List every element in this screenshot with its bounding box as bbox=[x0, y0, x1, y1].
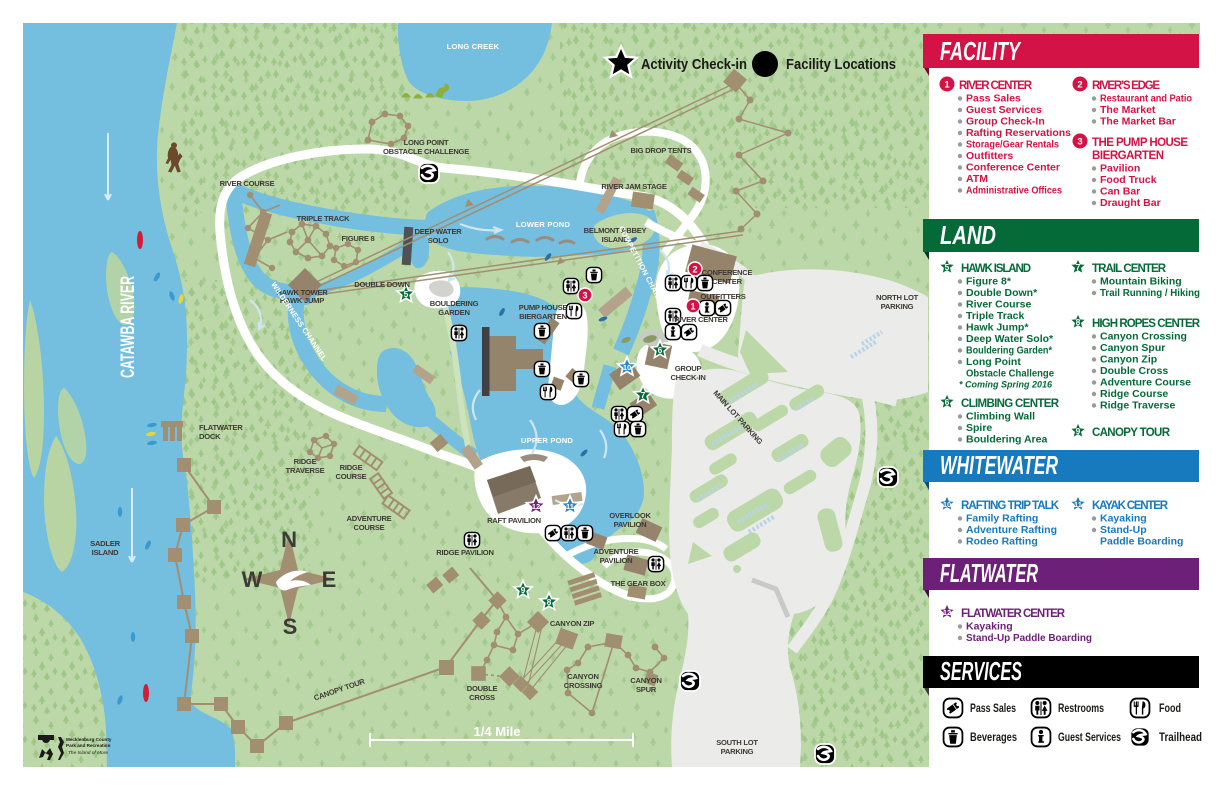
svg-text:PUMP HOUSE: PUMP HOUSE bbox=[519, 303, 568, 312]
svg-text:Spire: Spire bbox=[966, 422, 992, 434]
svg-text:5: 5 bbox=[945, 262, 950, 272]
svg-text:2: 2 bbox=[692, 265, 697, 275]
svg-text:DOUBLE DOWN: DOUBLE DOWN bbox=[354, 280, 409, 289]
svg-text:Triple Track: Triple Track bbox=[966, 310, 1025, 322]
svg-text:Mecklenburg County: Mecklenburg County bbox=[66, 737, 112, 742]
svg-text:DOCK: DOCK bbox=[199, 432, 221, 441]
svg-text:11: 11 bbox=[566, 502, 574, 511]
svg-text:FLATWATER CENTER: FLATWATER CENTER bbox=[961, 608, 1066, 620]
svg-text:RIVER JAM STAGE: RIVER JAM STAGE bbox=[601, 182, 666, 191]
svg-text:CLIMBING CENTER: CLIMBING CENTER bbox=[961, 398, 1060, 410]
svg-text:OUTFITTERS: OUTFITTERS bbox=[700, 292, 745, 301]
svg-text:PAVILION: PAVILION bbox=[600, 556, 633, 565]
svg-text:Deep Water Solo*: Deep Water Solo* bbox=[966, 333, 1054, 345]
svg-text:DEEP WATER: DEEP WATER bbox=[414, 227, 462, 236]
svg-text:SOUTH LOT: SOUTH LOT bbox=[716, 738, 758, 747]
svg-text:E: E bbox=[322, 567, 337, 592]
svg-text:Restaurant and Patio: Restaurant and Patio bbox=[1100, 93, 1192, 105]
svg-text:Storage/Gear Rentals: Storage/Gear Rentals bbox=[966, 139, 1059, 151]
svg-text:Stand-Up: Stand-Up bbox=[1100, 524, 1147, 536]
svg-text:LONG POINT: LONG POINT bbox=[404, 138, 449, 147]
svg-text:11: 11 bbox=[1074, 500, 1082, 509]
svg-text:TRAIL CENTER: TRAIL CENTER bbox=[1092, 263, 1167, 275]
svg-text:ADVENTURE: ADVENTURE bbox=[593, 547, 638, 556]
svg-text:THE GEAR BOX: THE GEAR BOX bbox=[611, 579, 666, 588]
svg-text:THE PUMP HOUSE: THE PUMP HOUSE bbox=[1092, 137, 1188, 149]
svg-text:Canyon Zip: Canyon Zip bbox=[1100, 354, 1157, 366]
svg-text:COURSE: COURSE bbox=[354, 523, 385, 532]
svg-text:Hawk Jump*: Hawk Jump* bbox=[966, 322, 1029, 334]
svg-text:WHITEWATER: WHITEWATER bbox=[940, 450, 1058, 480]
svg-text:BELMONT ABBEY: BELMONT ABBEY bbox=[584, 226, 647, 235]
svg-text:Pass Sales: Pass Sales bbox=[966, 93, 1021, 105]
svg-text:OBSTACLE CHALLENGE: OBSTACLE CHALLENGE bbox=[383, 147, 469, 156]
svg-text:Rodeo Rafting: Rodeo Rafting bbox=[966, 536, 1038, 548]
svg-text:W: W bbox=[242, 567, 263, 592]
svg-text:Activity Check-in: Activity Check-in bbox=[641, 56, 747, 73]
svg-text:Family Rafting: Family Rafting bbox=[966, 513, 1038, 525]
svg-text:BIERGARTEN: BIERGARTEN bbox=[1092, 150, 1164, 162]
svg-text:Restrooms: Restrooms bbox=[1058, 703, 1104, 715]
svg-text:9: 9 bbox=[1076, 426, 1081, 436]
svg-text:12: 12 bbox=[532, 502, 540, 511]
svg-text:LAND: LAND bbox=[940, 220, 996, 250]
svg-text:Guest Services: Guest Services bbox=[1058, 732, 1121, 744]
svg-text:Trailhead: Trailhead bbox=[1159, 732, 1202, 744]
svg-text:Rafting Reservations: Rafting Reservations bbox=[966, 127, 1071, 139]
svg-text:SOLO: SOLO bbox=[428, 236, 449, 245]
svg-text:BIERGARTEN: BIERGARTEN bbox=[519, 312, 567, 321]
svg-text:Canyon Spur: Canyon Spur bbox=[1100, 342, 1165, 354]
svg-text:CONFERENCE: CONFERENCE bbox=[702, 268, 753, 277]
svg-text:SPUR: SPUR bbox=[636, 685, 657, 694]
svg-text:Beverages: Beverages bbox=[970, 732, 1017, 744]
svg-text:COURSE: COURSE bbox=[336, 472, 367, 481]
svg-text:KAYAK CENTER: KAYAK CENTER bbox=[1092, 500, 1169, 512]
svg-text:Food: Food bbox=[1159, 703, 1181, 715]
svg-text:Obstacle Challenge: Obstacle Challenge bbox=[966, 368, 1054, 380]
svg-text:Double Down*: Double Down* bbox=[966, 287, 1038, 299]
svg-text:Food Truck: Food Truck bbox=[1100, 174, 1157, 186]
svg-text:The Market Bar: The Market Bar bbox=[1100, 116, 1176, 128]
svg-text:GARDEN: GARDEN bbox=[438, 308, 469, 317]
svg-text:Kayaking: Kayaking bbox=[1100, 513, 1147, 525]
svg-text:Facility Locations: Facility Locations bbox=[786, 56, 896, 73]
svg-text:OVERLOOK: OVERLOOK bbox=[609, 511, 651, 520]
svg-text:10: 10 bbox=[623, 363, 631, 372]
svg-text:7: 7 bbox=[641, 390, 646, 400]
svg-text:SERVICES: SERVICES bbox=[940, 656, 1022, 686]
svg-text:BOULDERING: BOULDERING bbox=[430, 299, 479, 308]
svg-text:NORTH LOT: NORTH LOT bbox=[876, 293, 919, 302]
svg-text:CANYON: CANYON bbox=[630, 676, 661, 685]
svg-text:3: 3 bbox=[582, 291, 587, 301]
svg-text:RIDGE PAVILION: RIDGE PAVILION bbox=[436, 548, 493, 557]
svg-text:Adventure Rafting: Adventure Rafting bbox=[966, 524, 1057, 536]
svg-text:Stand-Up Paddle Boarding: Stand-Up Paddle Boarding bbox=[966, 632, 1092, 644]
svg-text:6: 6 bbox=[945, 397, 950, 407]
svg-text:Climbing Wall: Climbing Wall bbox=[966, 411, 1035, 423]
svg-text:CROSS: CROSS bbox=[469, 693, 495, 702]
svg-text:10: 10 bbox=[943, 500, 951, 509]
svg-text:HIGH ROPES CENTER: HIGH ROPES CENTER bbox=[1092, 318, 1201, 330]
svg-text:Adventure Course: Adventure Course bbox=[1100, 377, 1191, 389]
svg-text:Guest Services: Guest Services bbox=[966, 104, 1042, 116]
svg-text:Group Check-In: Group Check-In bbox=[966, 116, 1045, 128]
svg-text:DOUBLE: DOUBLE bbox=[467, 684, 498, 693]
svg-text:CANYON: CANYON bbox=[567, 672, 598, 681]
svg-text:CHECK-IN: CHECK-IN bbox=[670, 373, 705, 382]
svg-text:CANOPY TOUR: CANOPY TOUR bbox=[1092, 427, 1171, 439]
svg-text:SADLER: SADLER bbox=[90, 539, 120, 548]
svg-text:RIVER CENTER: RIVER CENTER bbox=[674, 315, 728, 324]
svg-text:ADVENTURE: ADVENTURE bbox=[346, 514, 391, 523]
svg-text:* Coming Spring 2016: * Coming Spring 2016 bbox=[959, 380, 1053, 390]
svg-text:CROSSING: CROSSING bbox=[564, 681, 603, 690]
svg-text:Double Cross: Double Cross bbox=[1100, 365, 1168, 377]
svg-text:CANYON ZIP: CANYON ZIP bbox=[550, 619, 595, 628]
svg-text:ISLAND: ISLAND bbox=[92, 548, 120, 557]
svg-text:TRAVERSE: TRAVERSE bbox=[286, 466, 325, 475]
svg-text:FLATWATER: FLATWATER bbox=[199, 423, 243, 432]
svg-text:CENTER: CENTER bbox=[712, 277, 742, 286]
svg-text:FIGURE 8: FIGURE 8 bbox=[341, 234, 374, 243]
svg-text:N: N bbox=[281, 527, 297, 552]
svg-text:RIVER CENTER: RIVER CENTER bbox=[959, 80, 1033, 92]
svg-text:Ridge Course: Ridge Course bbox=[1100, 388, 1168, 400]
svg-text:3: 3 bbox=[1077, 137, 1082, 148]
svg-text:Administrative Offices: Administrative Offices bbox=[966, 185, 1062, 197]
svg-text:ATM: ATM bbox=[966, 173, 988, 185]
svg-text:UPPER POND: UPPER POND bbox=[521, 436, 574, 445]
svg-text:Kayaking: Kayaking bbox=[966, 621, 1013, 633]
svg-text:PARKING: PARKING bbox=[881, 302, 914, 311]
svg-text:RIDGE: RIDGE bbox=[294, 457, 317, 466]
svg-text:Outfitters: Outfitters bbox=[966, 150, 1013, 162]
svg-text:BIG DROP TENTS: BIG DROP TENTS bbox=[631, 146, 692, 155]
svg-text:8: 8 bbox=[547, 597, 552, 607]
svg-text:RIVER’S EDGE: RIVER’S EDGE bbox=[1092, 80, 1160, 92]
svg-text:CATAWBA RIVER: CATAWBA RIVER bbox=[118, 276, 139, 378]
svg-text:PAVILION: PAVILION bbox=[614, 520, 647, 529]
svg-text:Conference Center: Conference Center bbox=[966, 162, 1060, 174]
svg-text:Bouldering Area: Bouldering Area bbox=[966, 434, 1047, 446]
svg-text:PARKING: PARKING bbox=[721, 747, 754, 756]
svg-text:1/4 Mile: 1/4 Mile bbox=[474, 725, 521, 739]
svg-text:Park and Recreation: Park and Recreation bbox=[66, 743, 111, 748]
svg-text:River Course: River Course bbox=[966, 299, 1032, 311]
svg-text:LOWER POND: LOWER POND bbox=[516, 220, 571, 229]
svg-text:FACILITY: FACILITY bbox=[940, 36, 1022, 66]
svg-text:12: 12 bbox=[943, 608, 951, 617]
svg-text:Canyon Crossing: Canyon Crossing bbox=[1100, 331, 1187, 343]
svg-text:Draught Bar: Draught Bar bbox=[1100, 197, 1161, 209]
svg-text:GROUP: GROUP bbox=[675, 364, 702, 373]
svg-text:FLATWATER: FLATWATER bbox=[940, 558, 1038, 588]
svg-text:Long Point: Long Point bbox=[966, 356, 1021, 368]
svg-text:Pass Sales: Pass Sales bbox=[970, 703, 1016, 715]
svg-text:5: 5 bbox=[404, 289, 409, 299]
svg-text:2: 2 bbox=[1077, 80, 1082, 91]
svg-text:Ridge Traverse: Ridge Traverse bbox=[1100, 400, 1175, 412]
svg-text:LONG CREEK: LONG CREEK bbox=[447, 42, 500, 51]
svg-text:The Island of More: The Island of More bbox=[68, 750, 108, 756]
svg-text:RAFT PAVILION: RAFT PAVILION bbox=[487, 516, 541, 525]
svg-text:6: 6 bbox=[658, 345, 663, 355]
svg-text:1: 1 bbox=[690, 302, 695, 312]
svg-text:Pavilion: Pavilion bbox=[1100, 163, 1140, 175]
svg-text:1: 1 bbox=[944, 80, 950, 91]
svg-text:Bouldering Garden*: Bouldering Garden* bbox=[966, 345, 1053, 357]
svg-text:S: S bbox=[283, 614, 298, 639]
svg-text:8: 8 bbox=[1076, 317, 1081, 327]
svg-text:Can Bar: Can Bar bbox=[1100, 186, 1140, 198]
svg-text:Mountain Biking: Mountain Biking bbox=[1100, 276, 1182, 288]
svg-text:9: 9 bbox=[521, 585, 526, 595]
svg-text:The Market: The Market bbox=[1100, 104, 1156, 116]
svg-text:RIVER COURSE: RIVER COURSE bbox=[220, 179, 275, 188]
svg-text:RAFTING TRIP TALK: RAFTING TRIP TALK bbox=[961, 500, 1060, 512]
svg-text:7: 7 bbox=[1076, 262, 1081, 272]
svg-text:Paddle Boarding: Paddle Boarding bbox=[1100, 536, 1183, 548]
svg-text:TRIPLE TRACK: TRIPLE TRACK bbox=[297, 214, 350, 223]
svg-text:HAWK ISLAND: HAWK ISLAND bbox=[961, 263, 1031, 275]
svg-text:Trail Running / Hiking: Trail Running / Hiking bbox=[1100, 287, 1200, 299]
svg-text:Figure 8*: Figure 8* bbox=[966, 276, 1012, 288]
svg-text:RIDGE: RIDGE bbox=[340, 463, 363, 472]
